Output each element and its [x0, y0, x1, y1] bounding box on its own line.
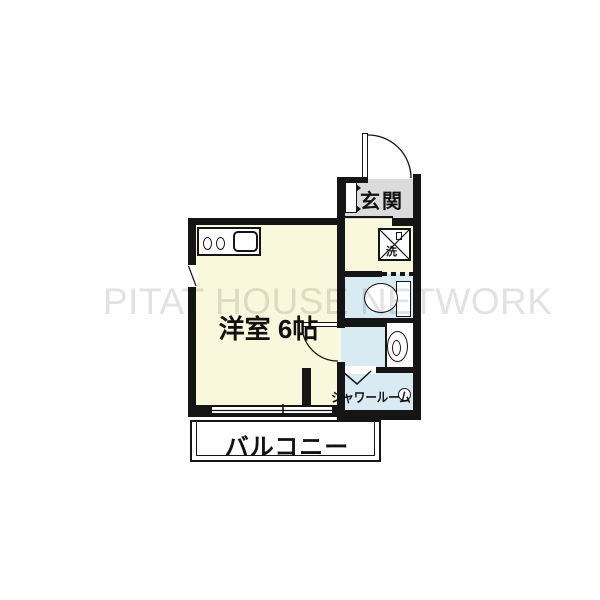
sliding-window: [212, 406, 332, 414]
genkan-label: 玄関: [360, 185, 404, 214]
laundry-faucet-icon: [396, 232, 402, 240]
toilet-top-dashed-opening: [382, 272, 413, 276]
shower-bottom-wall: [337, 410, 421, 420]
genkan-step-edge: [345, 216, 393, 218]
shower-door-opening: [345, 366, 376, 374]
wall-stub: [302, 368, 311, 405]
floorplan: 玄関 洋室 6帖 シャワールーム バルコニー 洗 PITAT HOUSE NET…: [0, 0, 600, 600]
watermark-text: PITAT HOUSE NETWORK: [103, 281, 503, 323]
shower-top-wall: [376, 367, 421, 373]
kitchen-sink: [233, 231, 258, 252]
entrance-door-leaf: [362, 133, 368, 178]
balcony-label: バルコニー: [190, 427, 384, 462]
stove-burner-icon: [203, 237, 212, 250]
shower-room-label: シャワールーム: [331, 387, 411, 406]
genkan-bottom-wall: [392, 218, 421, 226]
stove-burner-icon: [216, 237, 225, 250]
toilet-top-wall: [337, 271, 382, 277]
laundry-kanji-label: 洗: [386, 243, 397, 259]
entrance-door-swing-arc: [368, 135, 411, 178]
washbasin-drain: [392, 340, 401, 356]
main-room-top-wall: [188, 218, 345, 225]
